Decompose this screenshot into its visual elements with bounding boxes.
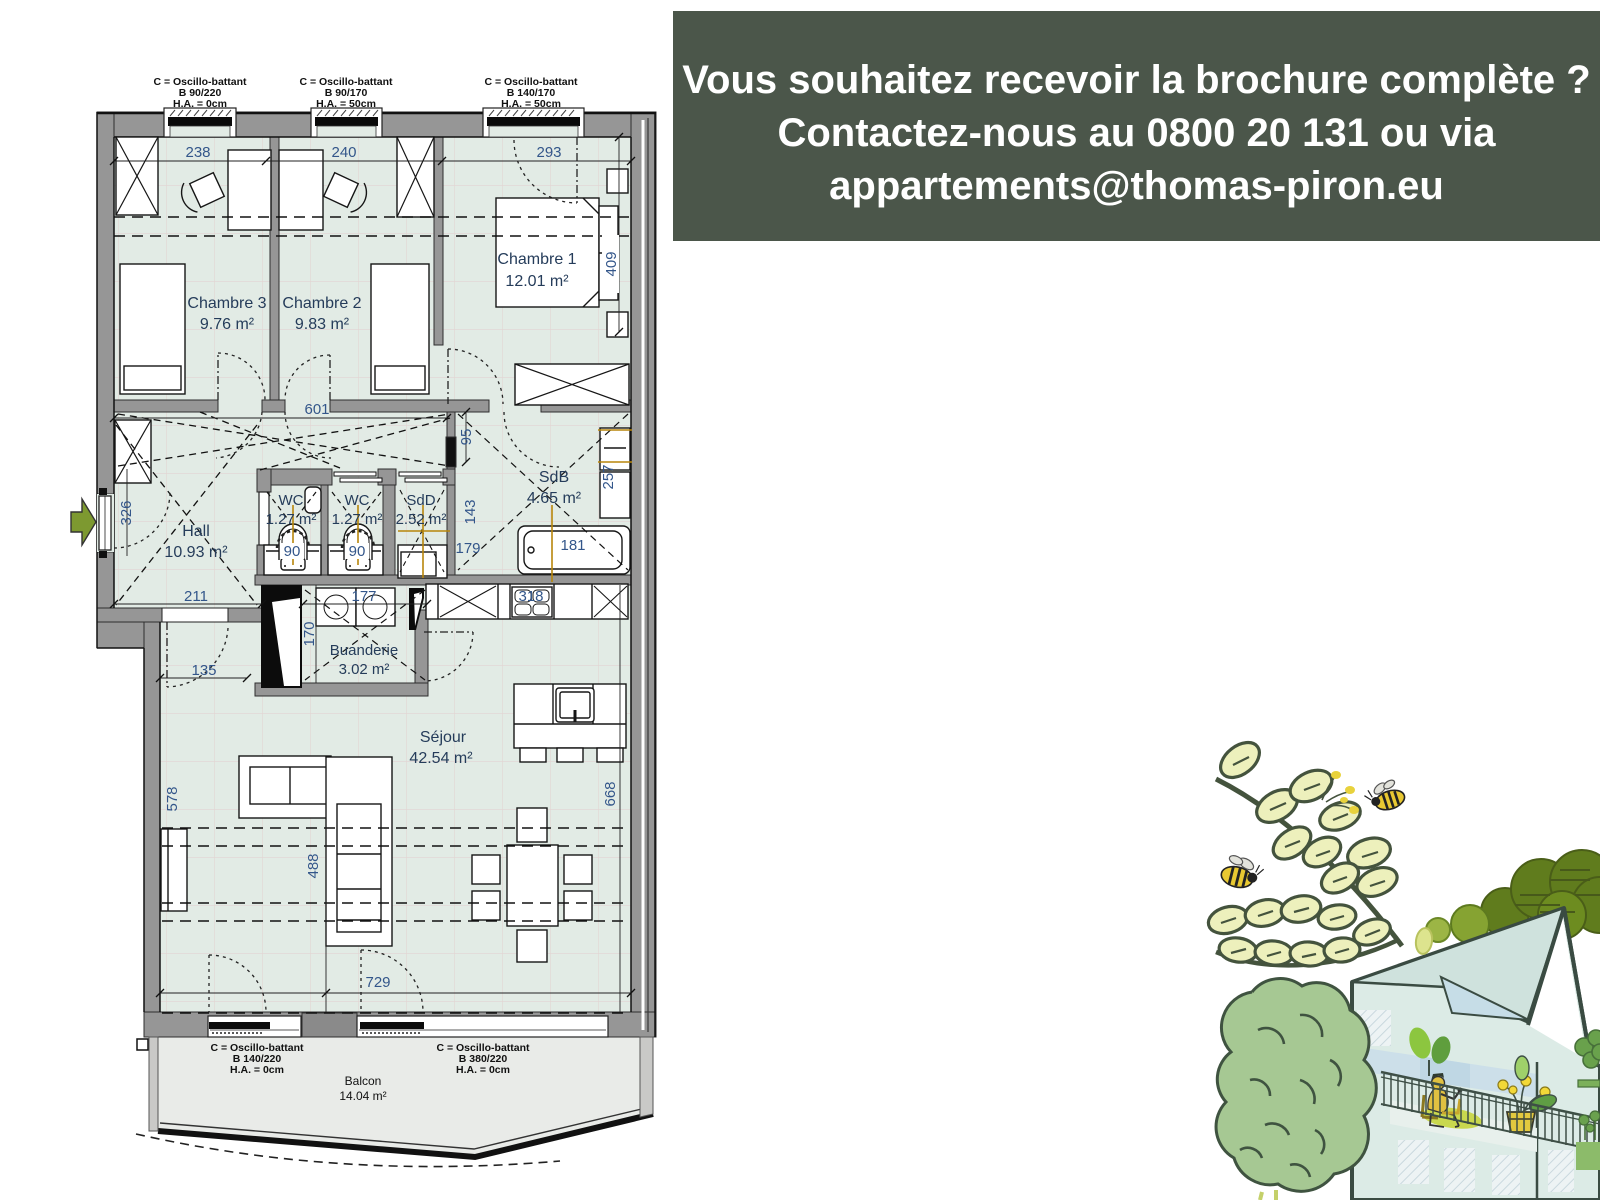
svg-text:9.76 m²: 9.76 m² (200, 316, 255, 333)
svg-text:Chambre 2: Chambre 2 (282, 295, 361, 312)
svg-text:Chambre 1: Chambre 1 (497, 251, 576, 268)
svg-text:95: 95 (458, 429, 475, 446)
svg-text:3.02 m²: 3.02 m² (339, 661, 390, 678)
svg-text:143: 143 (462, 499, 479, 524)
svg-text:238: 238 (185, 144, 210, 161)
svg-text:H.A. = 0cm: H.A. = 0cm (230, 1064, 284, 1076)
svg-text:10.93 m²: 10.93 m² (164, 544, 228, 561)
svg-text:WC: WC (279, 492, 304, 509)
svg-text:409: 409 (603, 251, 620, 276)
svg-text:211: 211 (184, 588, 208, 605)
svg-text:326: 326 (118, 500, 135, 525)
svg-text:293: 293 (536, 144, 561, 161)
svg-text:90: 90 (284, 543, 301, 560)
svg-text:Chambre 3: Chambre 3 (187, 295, 266, 312)
svg-text:H.A. = 50cm: H.A. = 50cm (501, 98, 561, 110)
svg-text:4.65 m²: 4.65 m² (527, 490, 582, 507)
svg-text:257: 257 (600, 464, 617, 489)
svg-text:9.83 m²: 9.83 m² (295, 316, 350, 333)
svg-text:170: 170 (301, 621, 318, 646)
svg-text:240: 240 (331, 144, 356, 161)
svg-text:179: 179 (455, 540, 480, 557)
svg-text:135: 135 (191, 662, 216, 679)
svg-text:181: 181 (560, 537, 585, 554)
svg-text:601: 601 (304, 401, 329, 418)
svg-text:668: 668 (602, 781, 619, 806)
svg-text:Hall: Hall (182, 523, 210, 540)
svg-text:14.04 m²: 14.04 m² (339, 1089, 386, 1103)
svg-text:12.01 m²: 12.01 m² (505, 273, 569, 290)
svg-text:90: 90 (349, 543, 366, 560)
svg-text:SdD: SdD (406, 492, 435, 509)
svg-text:578: 578 (164, 786, 181, 811)
svg-text:2.52 m²: 2.52 m² (396, 511, 447, 528)
svg-text:177: 177 (351, 588, 376, 605)
svg-text:Séjour: Séjour (420, 729, 467, 746)
svg-text:SdB: SdB (539, 469, 569, 486)
svg-text:1.27 m²: 1.27 m² (332, 511, 383, 528)
svg-text:H.A. = 0cm: H.A. = 0cm (456, 1064, 510, 1076)
svg-text:318: 318 (518, 588, 543, 605)
svg-text:WC: WC (345, 492, 370, 509)
svg-text:H.A. = 50cm: H.A. = 50cm (316, 98, 376, 110)
svg-text:H.A. = 0cm: H.A. = 0cm (173, 98, 227, 110)
svg-text:488: 488 (305, 853, 322, 878)
svg-text:1.27 m²: 1.27 m² (266, 511, 317, 528)
svg-text:42.54 m²: 42.54 m² (409, 750, 473, 767)
svg-text:Buanderie: Buanderie (330, 642, 398, 659)
svg-text:729: 729 (365, 974, 390, 991)
svg-text:Balcon: Balcon (345, 1074, 382, 1088)
